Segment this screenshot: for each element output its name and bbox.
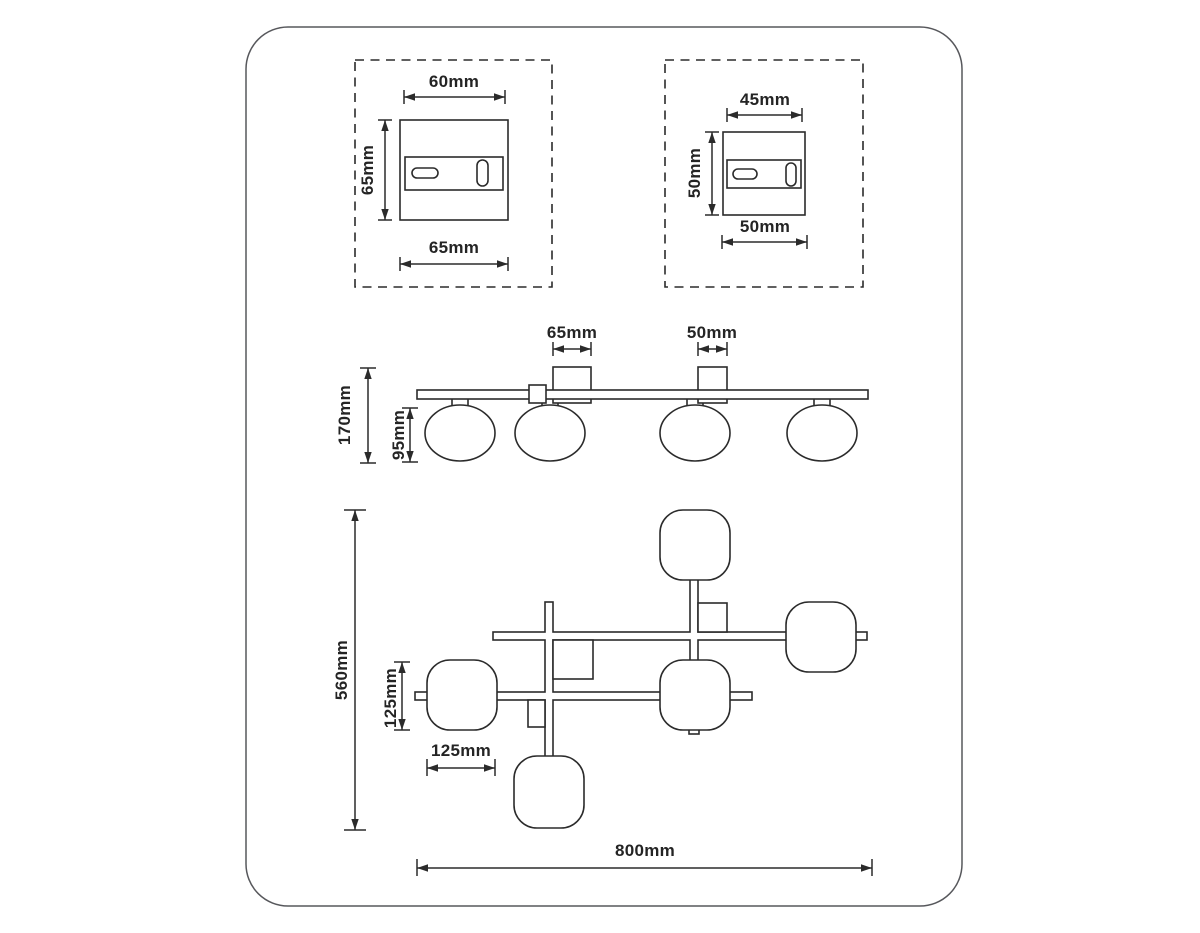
canopy-square-small: [528, 700, 545, 727]
dimension-drawing-page: 60mm 65mm 65mm 45mm: [0, 0, 1200, 933]
globe-shade: [515, 405, 585, 461]
dimension-label: 800mm: [615, 841, 675, 860]
globe-shade: [787, 405, 857, 461]
globe-shade: [425, 405, 495, 461]
dimension-65mm-height: 65mm: [358, 120, 392, 220]
support-bar: [417, 390, 868, 399]
globe-shade: [660, 660, 730, 730]
dimension-65mm-width: 65mm: [400, 238, 508, 271]
globe-shade: [660, 405, 730, 461]
lamp-side-view: 65mm 50mm 170mm 95mm: [335, 323, 868, 463]
dimension-95mm: 95mm: [389, 408, 418, 462]
dimension-label: 65mm: [358, 145, 377, 195]
lamp-dimension-diagram: 60mm 65mm 65mm 45mm: [0, 0, 1200, 933]
large-mounting-plate-detail: 60mm 65mm 65mm: [355, 60, 552, 287]
small-mounting-plate-detail: 45mm 50mm 50mm: [665, 60, 863, 287]
horizontal-slot: [412, 168, 438, 178]
dimension-50mm-canopy: 50mm: [687, 323, 737, 356]
globe-shade: [514, 756, 584, 828]
dimension-label: 45mm: [740, 90, 790, 109]
globe-shade: [660, 510, 730, 580]
dimension-50mm-height: 50mm: [685, 132, 719, 215]
canopy-square-right: [698, 603, 727, 632]
globe-shade: [786, 602, 856, 672]
dimension-label: 125mm: [431, 741, 491, 760]
dimension-45mm: 45mm: [727, 90, 802, 122]
dimension-label: 65mm: [547, 323, 597, 342]
lamp-top-view: 560mm 125mm 125mm 800mm: [332, 510, 872, 876]
dimension-label: 170mm: [335, 385, 354, 445]
dimension-label: 95mm: [389, 410, 408, 460]
canopy-square-large: [553, 640, 593, 679]
dimension-60mm: 60mm: [404, 72, 505, 104]
dimension-label: 50mm: [687, 323, 737, 342]
dimension-50mm-width: 50mm: [722, 217, 807, 249]
vertical-slot: [786, 163, 796, 186]
dimension-65mm-canopy: 65mm: [547, 323, 597, 356]
dimension-label: 560mm: [332, 640, 351, 700]
dimension-170mm: 170mm: [335, 368, 376, 463]
dimension-560mm: 560mm: [332, 510, 366, 830]
globe-shade: [427, 660, 497, 730]
dimension-label: 50mm: [740, 217, 790, 236]
horizontal-slot: [733, 169, 757, 179]
dimension-800mm: 800mm: [417, 841, 872, 876]
canopy-square: [529, 385, 546, 403]
dimension-label: 65mm: [429, 238, 479, 257]
drawing-frame-border: [246, 27, 962, 906]
vertical-slot: [477, 160, 488, 186]
dimension-label: 60mm: [429, 72, 479, 91]
dimension-label: 50mm: [685, 148, 704, 198]
dimension-label: 125mm: [381, 668, 400, 728]
dimension-125mm-depth: 125mm: [381, 662, 410, 730]
dimension-125mm-width: 125mm: [427, 741, 495, 776]
